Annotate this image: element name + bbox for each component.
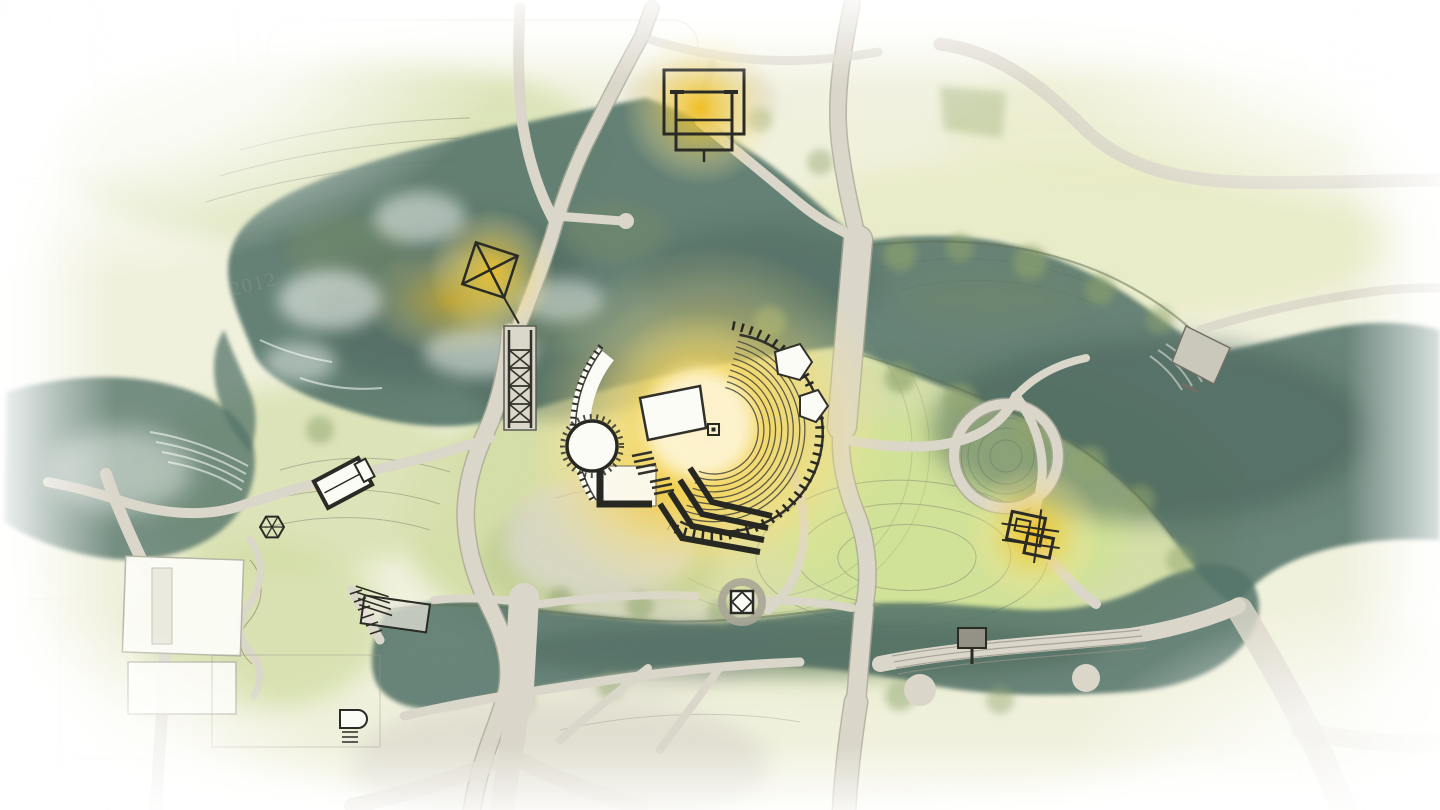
site-plan-canvas: 2012 (0, 0, 1440, 810)
vignette (0, 0, 1440, 810)
site-plan-map: 2012 (0, 0, 1440, 810)
